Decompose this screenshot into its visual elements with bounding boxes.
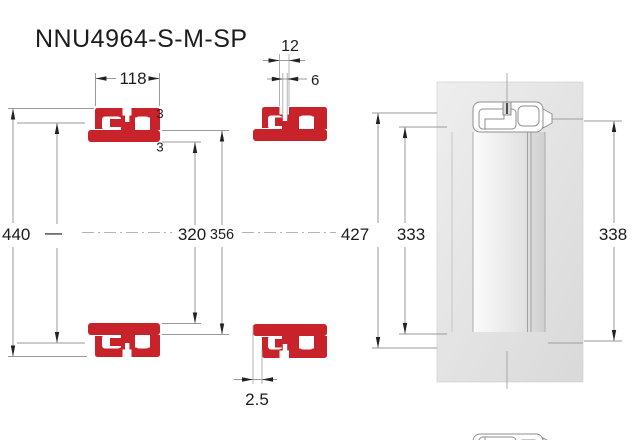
part-number-title: NNU4964-S-M-SP (35, 25, 248, 53)
dim-label-groove: 12 (281, 38, 299, 55)
dim-label-bore: 320 (178, 225, 206, 244)
mounting-figure (437, 73, 583, 440)
arrow-right (149, 76, 160, 80)
side-section-bottom (253, 324, 327, 358)
drawing-canvas: NNU4964-S-M-SP 118 (0, 0, 640, 440)
shaft-seat (473, 132, 545, 332)
arrow-up (220, 131, 224, 142)
arrow-left (96, 76, 107, 80)
arrow-down (612, 330, 616, 341)
side-section-top (253, 107, 327, 141)
dim-label-abutment: 333 (397, 225, 425, 244)
arrow-up (403, 127, 407, 138)
mounted-bearing-top (473, 102, 552, 132)
arrow-down (11, 346, 15, 357)
dim-label-recess: 427 (341, 225, 369, 244)
arrow-inward-left (262, 377, 273, 381)
dim-label-od: 440 (2, 225, 30, 244)
arrow-up (193, 142, 197, 153)
dim-label-hole: 6 (311, 72, 319, 89)
arrow-inward-right (269, 58, 280, 62)
arrow-inward-left (289, 58, 300, 62)
bearing-datasheet-drawing: NNU4964-S-M-SP 118 (0, 0, 640, 440)
front-section-top (88, 108, 160, 142)
arrow-up (11, 109, 15, 120)
arrow-inward-right (242, 377, 253, 381)
front-section-bottom (88, 323, 160, 357)
arrow-down (376, 337, 380, 348)
dim-label-raceway: 356 (210, 227, 234, 243)
dim-bore-320: 320 (162, 142, 206, 324)
dim-label-chamfer-top: 3 (156, 106, 163, 121)
arrow-inward-right (272, 77, 283, 81)
dim-width-118: 118 (96, 69, 160, 106)
arrow-up (376, 113, 380, 124)
dim-groove-12: 12 (263, 38, 305, 106)
arrow-up (55, 123, 59, 134)
dim-label-chamfer-bottom: 3 (156, 140, 163, 155)
arrow-down (403, 323, 407, 334)
dim-shoulder-338: 338 (584, 121, 627, 341)
dim-label-offset: 2.5 (245, 390, 269, 409)
arrow-up (612, 121, 616, 132)
mounted-bearing-bottom (473, 434, 552, 440)
arrow-down (193, 313, 197, 324)
dim-label-dash: — (45, 223, 62, 242)
dim-label-width: 118 (119, 69, 146, 88)
side-section-figure (242, 107, 336, 358)
arrow-down (220, 324, 224, 335)
dim-label-shoulder: 338 (599, 225, 627, 244)
arrow-down (55, 332, 59, 343)
